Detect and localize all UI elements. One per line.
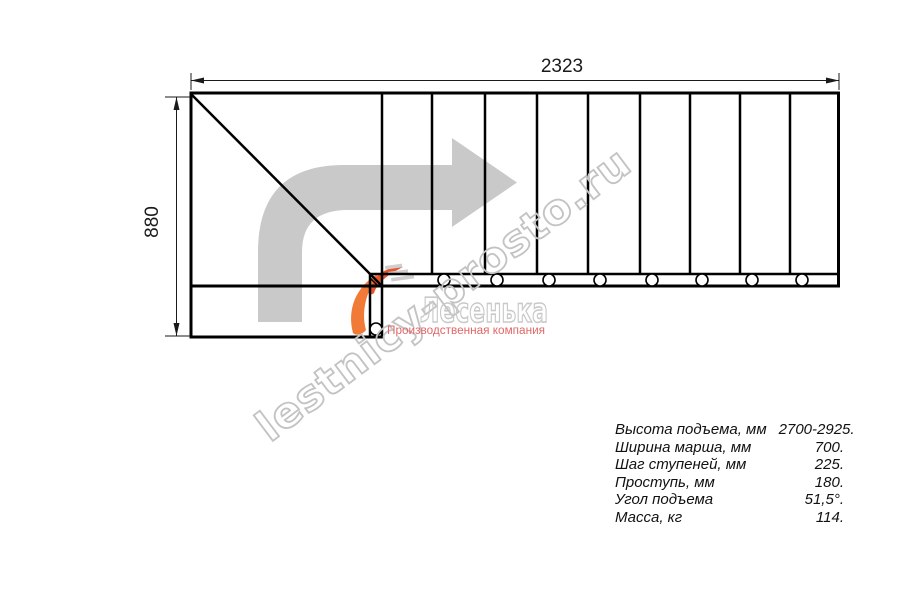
staircase-drawing-page: 2323 880 lestnicy-prosto.ru Лесенька Про… — [0, 0, 900, 600]
dimension-height — [165, 97, 190, 336]
spec-row: Высота подъема, мм 2700-2925. — [615, 421, 844, 439]
spec-value: 225. — [815, 456, 844, 474]
spec-value: 114. — [816, 509, 844, 527]
mount-circle — [696, 274, 708, 286]
dimension-height-label: 880 — [142, 206, 163, 238]
dim-arrowhead-right — [826, 78, 839, 84]
mount-circle — [543, 274, 555, 286]
spec-row: Угол подъема 51,5°. — [615, 491, 844, 509]
spec-row: Шаг ступеней, мм 225. — [615, 456, 844, 474]
spec-table: Высота подъема, мм 2700-2925. Ширина мар… — [615, 421, 844, 527]
spec-value: 2700-2925. — [779, 421, 855, 439]
mount-circle — [594, 274, 606, 286]
spec-value: 700. — [815, 439, 844, 457]
dimension-width — [191, 73, 839, 90]
logo-steps-glyph — [385, 264, 414, 282]
mount-circle — [796, 274, 808, 286]
spec-label: Ширина марша, мм — [615, 439, 751, 457]
spec-label: Масса, кг — [615, 509, 682, 527]
dim-arrowhead-bottom — [174, 323, 180, 336]
spec-row: Ширина марша, мм 700. — [615, 439, 844, 457]
spec-label: Проступь, мм — [615, 474, 715, 492]
dimension-width-label: 2323 — [541, 56, 583, 77]
spec-label: Высота подъема, мм — [615, 421, 767, 439]
dim-arrowhead-top — [174, 97, 180, 110]
spec-value: 180. — [815, 474, 844, 492]
mount-circle — [746, 274, 758, 286]
mount-circle — [646, 274, 658, 286]
watermark-tagline: Производственная компания — [387, 325, 545, 337]
spec-row: Масса, кг 114. — [615, 509, 844, 527]
spec-label: Шаг ступеней, мм — [615, 456, 746, 474]
dim-arrowhead-left — [191, 78, 204, 84]
spec-row: Проступь, мм 180. — [615, 474, 844, 492]
spec-value: 51,5°. — [805, 491, 844, 509]
spec-label: Угол подъема — [615, 491, 713, 509]
